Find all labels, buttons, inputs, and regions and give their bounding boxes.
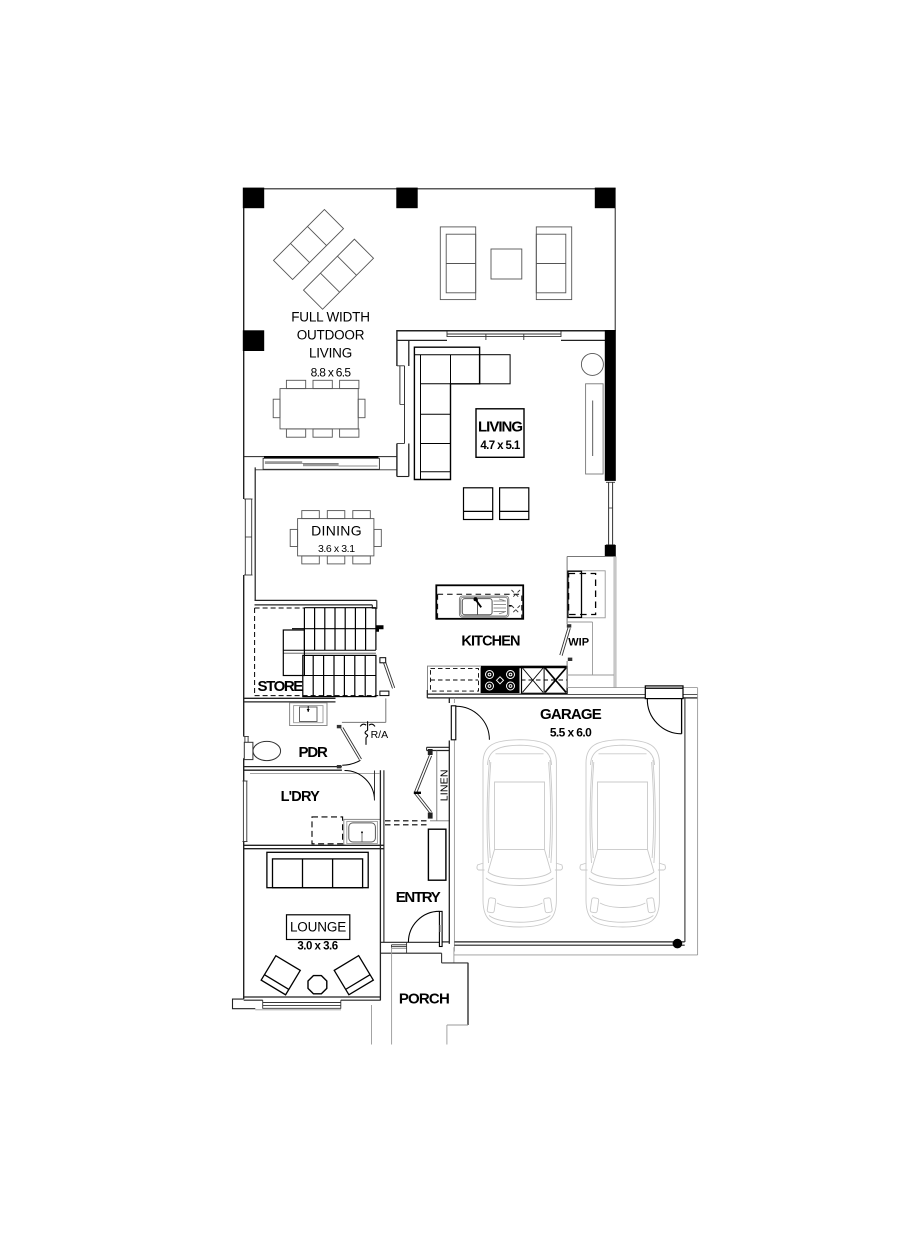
svg-text:DINING: DINING	[311, 523, 362, 539]
svg-text:PORCH: PORCH	[399, 991, 449, 1008]
svg-text:3.0 x 3.6: 3.0 x 3.6	[297, 941, 337, 953]
svg-text:LIVING: LIVING	[478, 419, 522, 436]
svg-text:3.6 x 3.1: 3.6 x 3.1	[318, 543, 355, 555]
svg-text:OUTDOOR: OUTDOOR	[297, 328, 365, 343]
svg-text:LINEN: LINEN	[438, 769, 450, 801]
svg-text:FULL WIDTH: FULL WIDTH	[291, 310, 370, 325]
svg-text:STORE: STORE	[258, 678, 304, 695]
svg-text:WIP: WIP	[568, 637, 589, 649]
svg-text:LIVING: LIVING	[309, 346, 352, 361]
svg-text:KITCHEN: KITCHEN	[461, 634, 520, 650]
svg-text:L'DRY: L'DRY	[281, 789, 321, 805]
svg-text:PDR: PDR	[299, 744, 328, 761]
svg-text:c: c	[675, 941, 679, 948]
svg-text:LOUNGE: LOUNGE	[290, 920, 346, 935]
svg-text:ENTRY: ENTRY	[396, 889, 441, 906]
svg-text:8.8 x 6.5: 8.8 x 6.5	[311, 366, 352, 380]
svg-text:R/A: R/A	[371, 729, 389, 741]
svg-text:GARAGE: GARAGE	[540, 706, 602, 723]
svg-text:5.5 x 6.0: 5.5 x 6.0	[550, 726, 592, 740]
svg-text:4.7 x 5.1: 4.7 x 5.1	[480, 440, 521, 452]
